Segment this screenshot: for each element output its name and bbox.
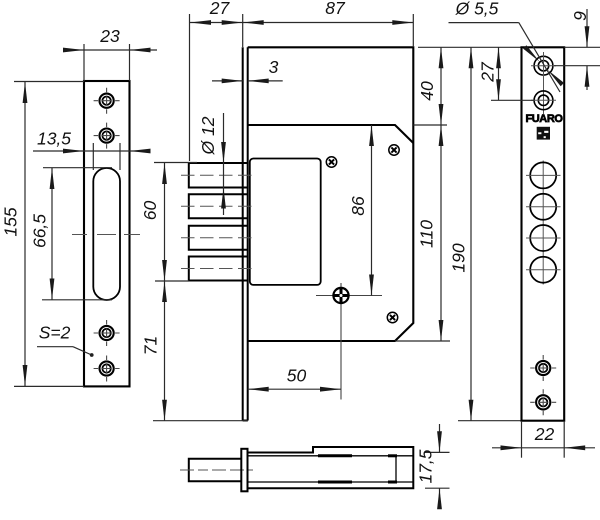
svg-text:71: 71 [141, 336, 161, 355]
svg-text:Ø 12: Ø 12 [198, 116, 218, 155]
svg-text:22: 22 [534, 424, 555, 444]
svg-text:17,5: 17,5 [416, 449, 436, 483]
svg-text:190: 190 [449, 243, 469, 272]
svg-text:155: 155 [1, 207, 21, 236]
svg-text:60: 60 [140, 201, 160, 221]
svg-text:3: 3 [269, 57, 279, 77]
svg-text:S=2: S=2 [39, 323, 71, 343]
svg-text:27: 27 [478, 61, 498, 83]
svg-text:Ø 5,5: Ø 5,5 [455, 0, 499, 19]
svg-text:9: 9 [570, 11, 590, 21]
svg-text:87: 87 [325, 0, 346, 18]
svg-text:86: 86 [348, 196, 368, 216]
svg-text:50: 50 [287, 366, 307, 386]
svg-text:40: 40 [417, 81, 437, 101]
svg-text:27: 27 [209, 0, 231, 18]
svg-text:23: 23 [99, 26, 120, 46]
svg-text:13,5: 13,5 [37, 129, 71, 149]
svg-text:FUARO: FUARO [525, 113, 563, 125]
svg-text:110: 110 [417, 220, 437, 248]
svg-text:66,5: 66,5 [30, 214, 50, 248]
